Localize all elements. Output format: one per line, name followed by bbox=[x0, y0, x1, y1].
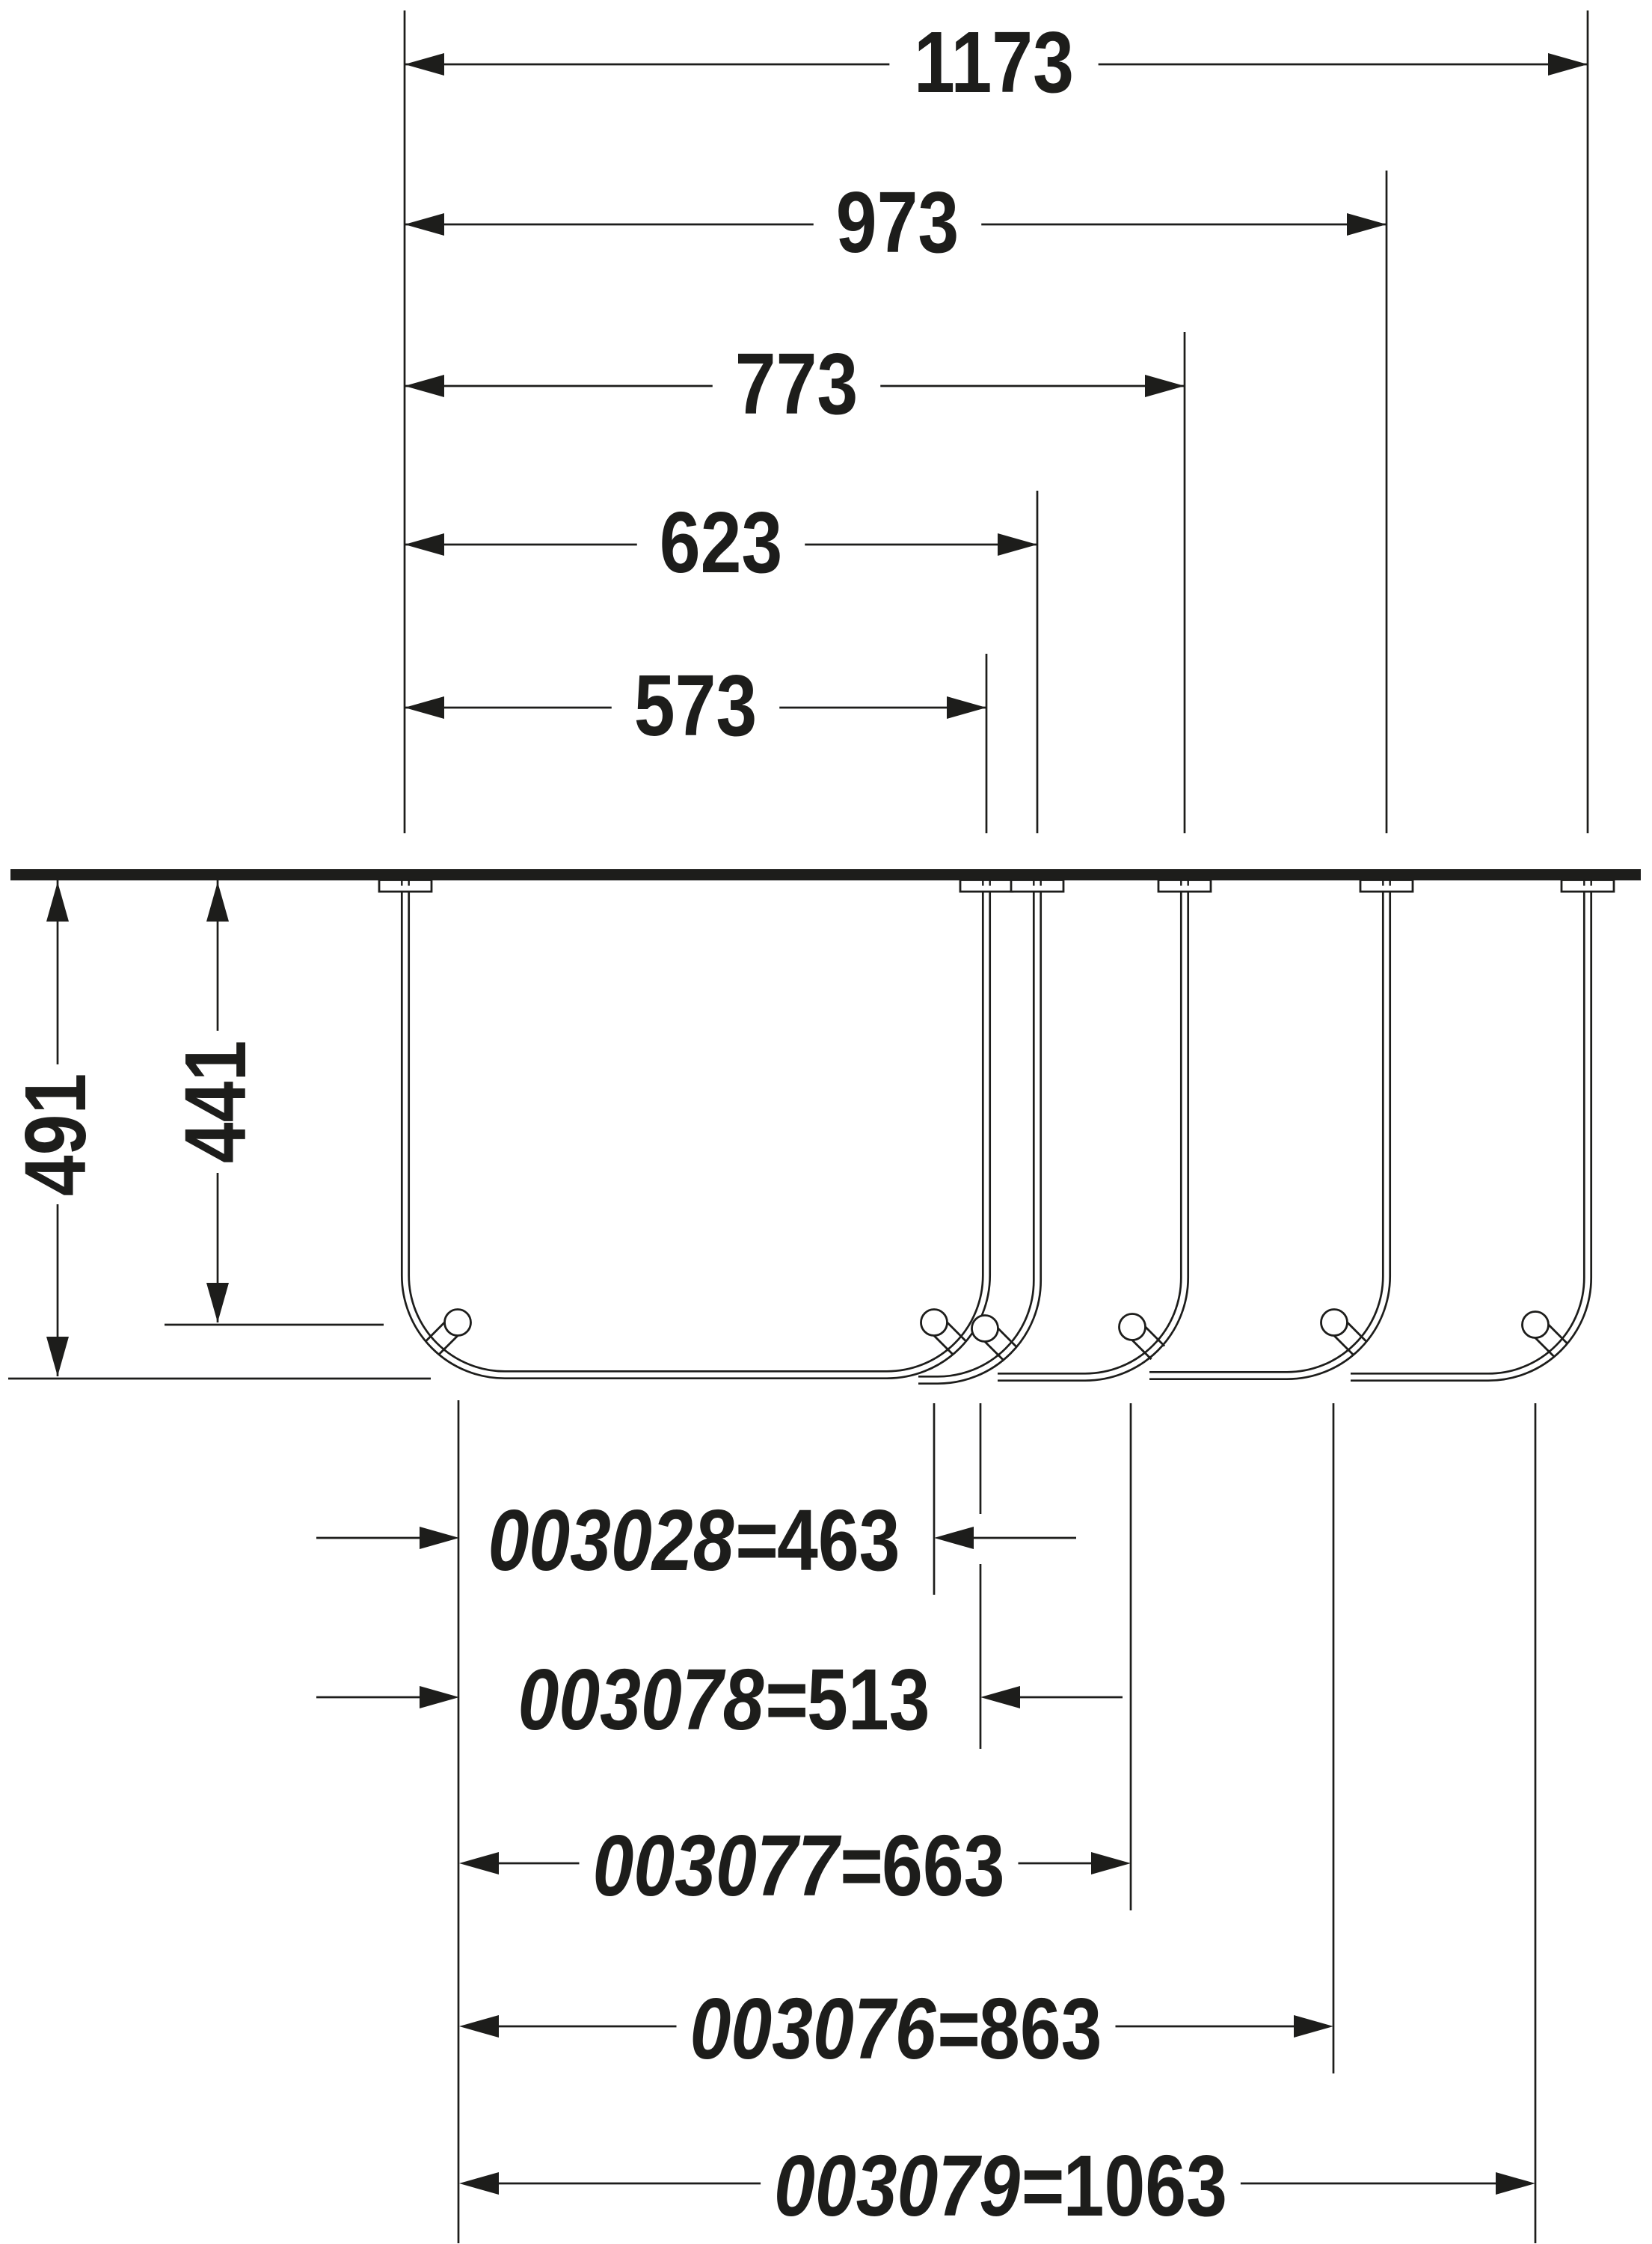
svg-text:003078=513: 003078=513 bbox=[518, 1651, 930, 1747]
svg-text:491: 491 bbox=[7, 1073, 103, 1197]
svg-text:003079=1063: 003079=1063 bbox=[774, 2137, 1227, 2234]
svg-text:573: 573 bbox=[634, 657, 758, 753]
svg-text:003076=863: 003076=863 bbox=[690, 1980, 1102, 2076]
svg-text:441: 441 bbox=[167, 1040, 263, 1164]
svg-text:003028=463: 003028=463 bbox=[488, 1492, 900, 1588]
svg-text:1173: 1173 bbox=[914, 13, 1074, 110]
svg-text:773: 773 bbox=[735, 335, 859, 432]
svg-text:003077=663: 003077=663 bbox=[592, 1817, 1004, 1913]
svg-text:623: 623 bbox=[660, 494, 783, 590]
svg-text:973: 973 bbox=[836, 174, 959, 270]
